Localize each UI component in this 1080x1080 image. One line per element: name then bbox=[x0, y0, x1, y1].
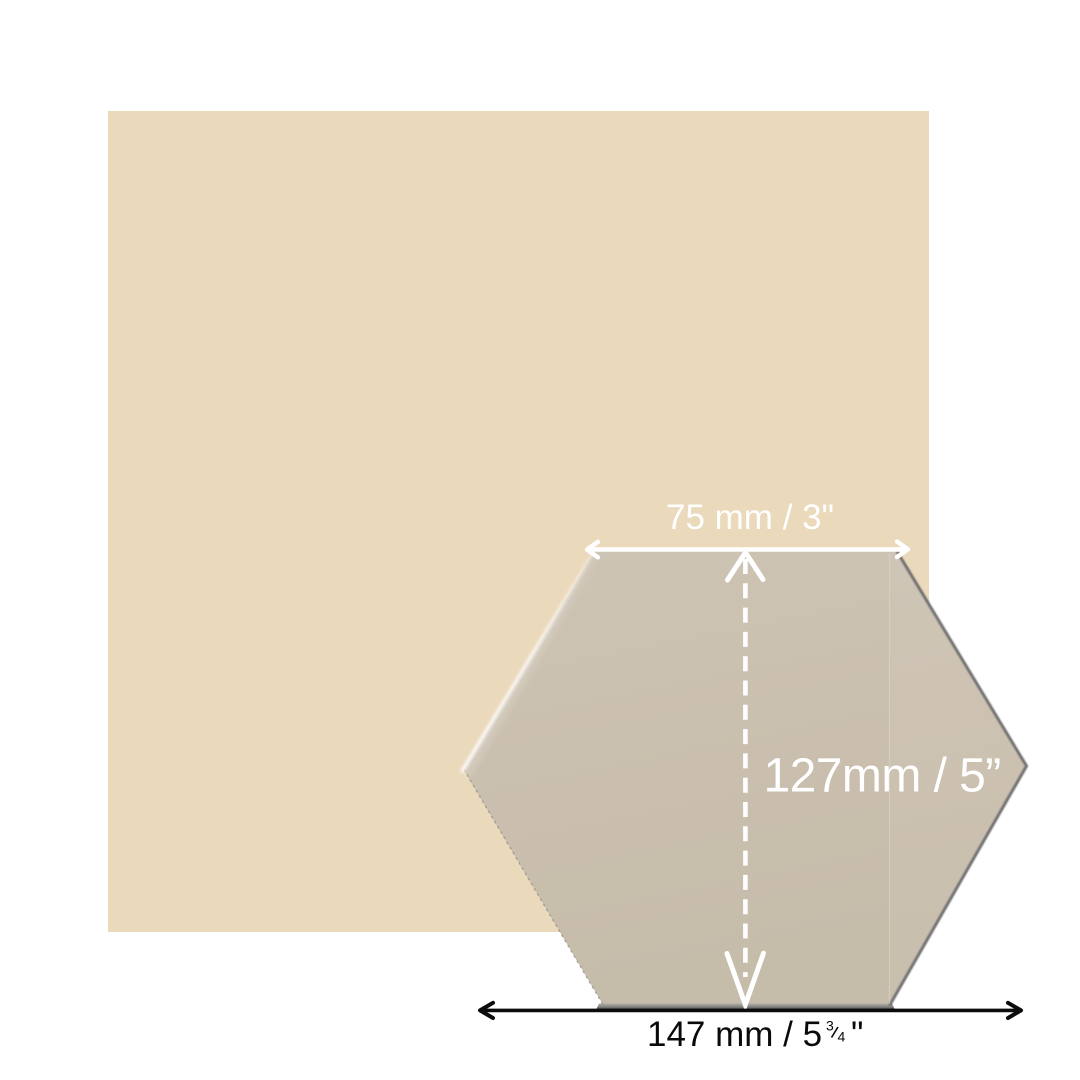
svg-text:147 mm / 5: 147 mm / 5 bbox=[647, 1015, 822, 1054]
svg-text:75 mm / 3": 75 mm / 3" bbox=[666, 498, 834, 537]
svg-text:": " bbox=[851, 1015, 863, 1054]
svg-text:3: 3 bbox=[826, 1018, 834, 1034]
svg-text:4: 4 bbox=[838, 1029, 846, 1045]
svg-text:127mm / 5”: 127mm / 5” bbox=[764, 749, 1001, 802]
